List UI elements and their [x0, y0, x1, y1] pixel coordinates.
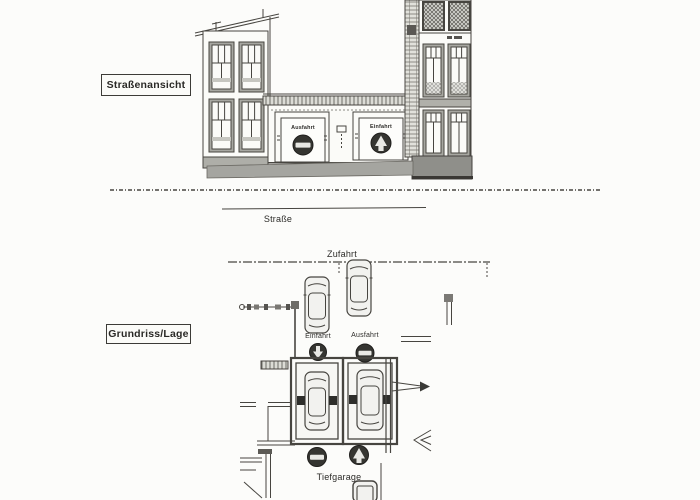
scanned-drawing-page: Ausfahrt Einfahrt [0, 0, 700, 500]
attic-window [449, 2, 470, 30]
elevation-title: Straßenansicht [107, 79, 186, 91]
arrow-up-sign-icon [371, 133, 391, 153]
elevation-drawing: Ausfahrt Einfahrt [195, 0, 473, 179]
basement-car [353, 481, 377, 500]
underground-garage-label: Tiefgarage [317, 472, 362, 482]
entry-door-label: Einfahrt [370, 124, 392, 130]
exit-label: Ausfahrt [351, 332, 379, 339]
plan-drawing: Zufahrt [228, 249, 490, 500]
street-label: Straße [264, 214, 292, 224]
exit-door-label: Ausfahrt [291, 125, 315, 131]
right-building [405, 0, 473, 179]
approach-label: Zufahrt [327, 249, 357, 259]
left-walls [240, 361, 295, 498]
garage-door-entry: Einfahrt [353, 112, 408, 160]
garage-wing: Ausfahrt Einfahrt [263, 94, 413, 163]
driveway-car [346, 260, 373, 316]
fence [240, 301, 300, 358]
arrow-up-sign-icon [350, 446, 369, 465]
plan-title-box: Grundriss/Lage [106, 324, 191, 344]
no-entry-sign-icon [308, 448, 327, 467]
no-entry-sign-icon [356, 344, 374, 362]
left-building [195, 9, 279, 168]
window [448, 110, 470, 156]
window [423, 110, 444, 156]
window [448, 44, 470, 97]
entry-label: Einfahrt [305, 333, 331, 340]
parked-car [357, 370, 383, 430]
window [209, 42, 234, 92]
window [239, 42, 264, 92]
window [209, 99, 234, 152]
street-line [222, 208, 426, 210]
elevation-title-box: Straßenansicht [101, 74, 191, 96]
no-entry-sign-icon [293, 135, 313, 155]
window [423, 44, 444, 97]
attic-window [423, 2, 444, 30]
parked-car [305, 372, 329, 430]
plan-title: Grundriss/Lage [108, 328, 188, 340]
window [239, 99, 264, 152]
garage-door-exit: Ausfahrt [275, 112, 329, 162]
driveway-car [304, 277, 331, 333]
